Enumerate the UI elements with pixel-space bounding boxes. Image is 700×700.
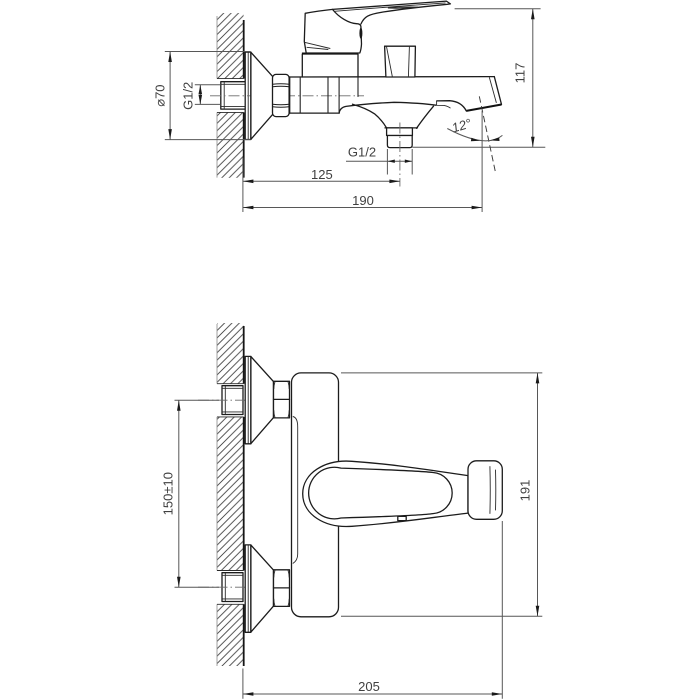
svg-text:205: 205	[358, 679, 380, 694]
svg-text:191: 191	[518, 480, 533, 502]
svg-text:G1/2: G1/2	[348, 144, 376, 159]
svg-text:150±10: 150±10	[160, 472, 175, 515]
svg-text:G1/2: G1/2	[180, 82, 195, 110]
svg-text:125: 125	[311, 167, 333, 182]
svg-text:190: 190	[352, 193, 374, 208]
svg-text:⌀70: ⌀70	[152, 84, 167, 106]
svg-text:117: 117	[513, 63, 528, 84]
